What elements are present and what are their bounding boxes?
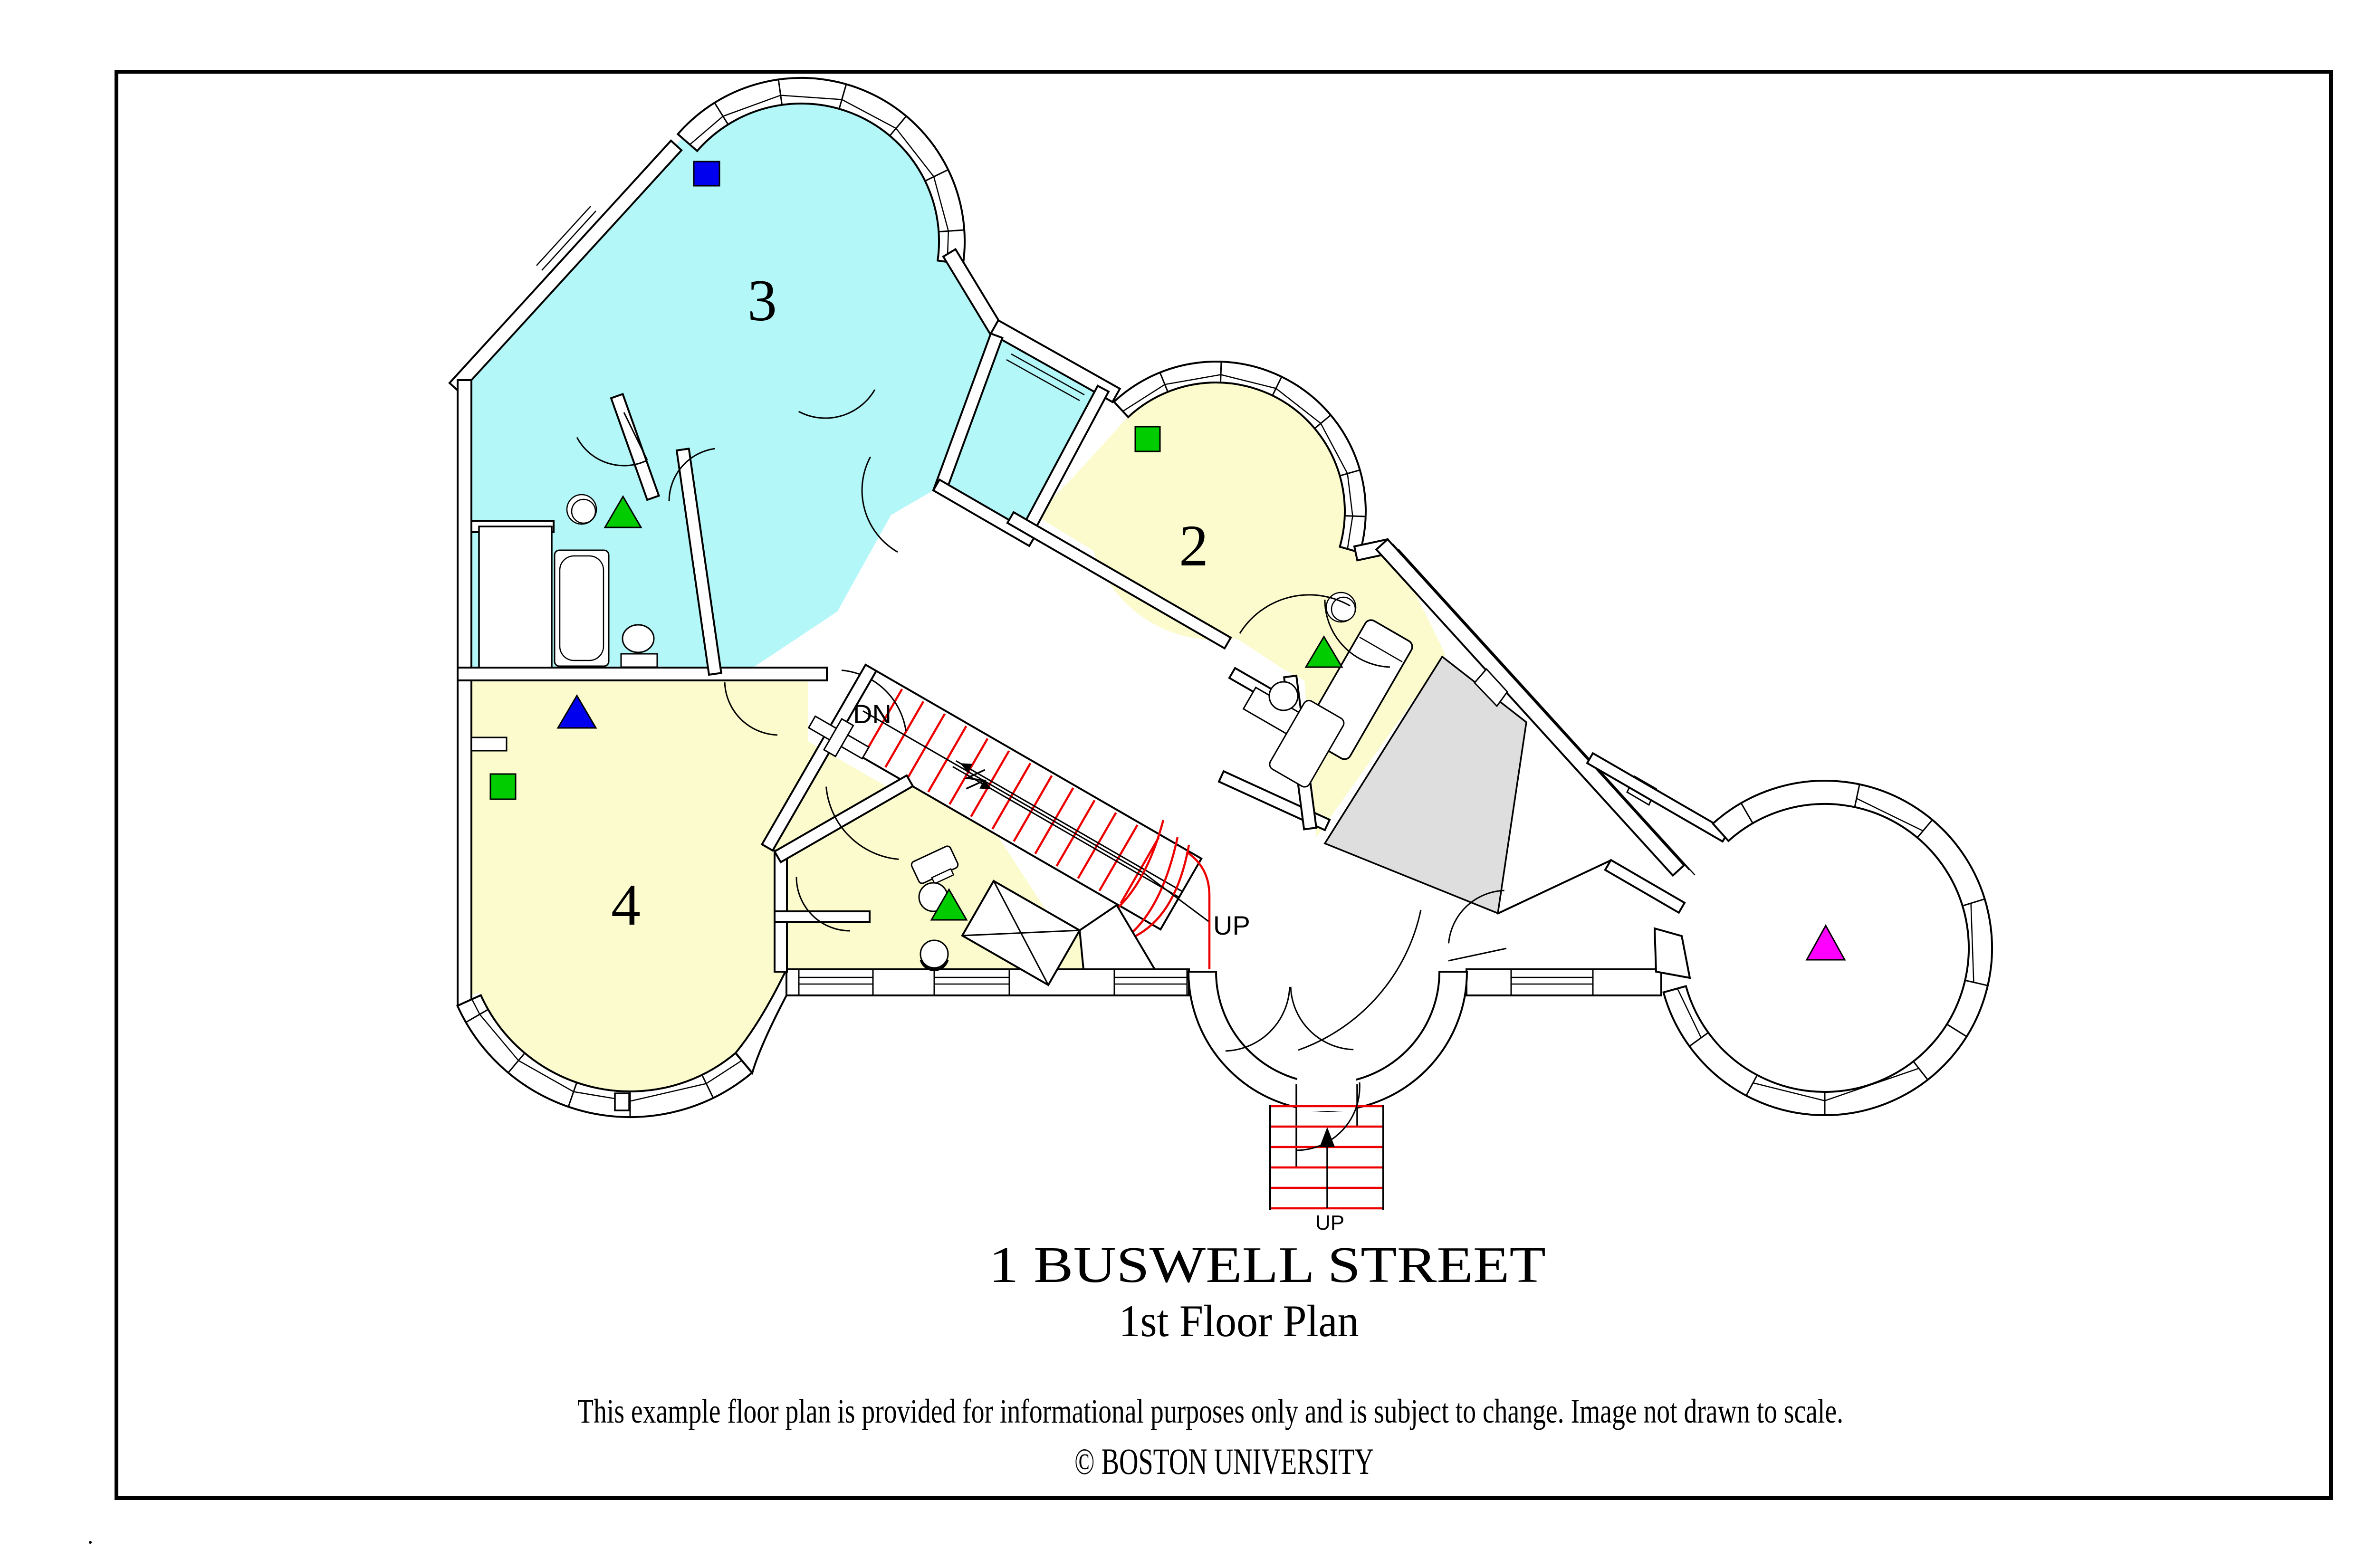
svg-text:2: 2 — [1179, 513, 1208, 578]
svg-text:1 BUSWELL STREET: 1 BUSWELL STREET — [989, 1237, 1546, 1293]
svg-text:3: 3 — [747, 268, 777, 333]
svg-text:© BOSTON UNIVERSITY: © BOSTON UNIVERSITY — [1074, 1441, 1374, 1482]
svg-text:UP: UP — [1315, 1211, 1344, 1234]
svg-text:This example floor plan is pro: This example floor plan is provided for … — [577, 1392, 1843, 1430]
svg-text:UP: UP — [1213, 910, 1250, 940]
svg-text:DN: DN — [853, 699, 891, 729]
svg-text:4: 4 — [611, 872, 641, 937]
svg-text:1st Floor Plan: 1st Floor Plan — [1119, 1296, 1359, 1346]
